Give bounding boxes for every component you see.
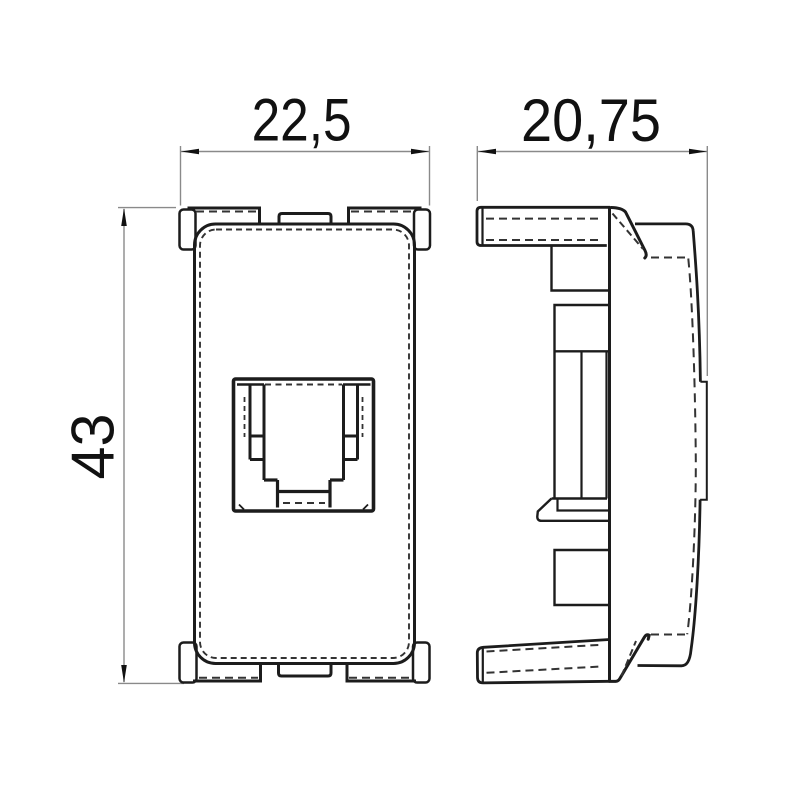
svg-text:43: 43 — [60, 414, 127, 480]
svg-text:20,75: 20,75 — [521, 87, 661, 154]
svg-text:22,5: 22,5 — [252, 87, 352, 154]
